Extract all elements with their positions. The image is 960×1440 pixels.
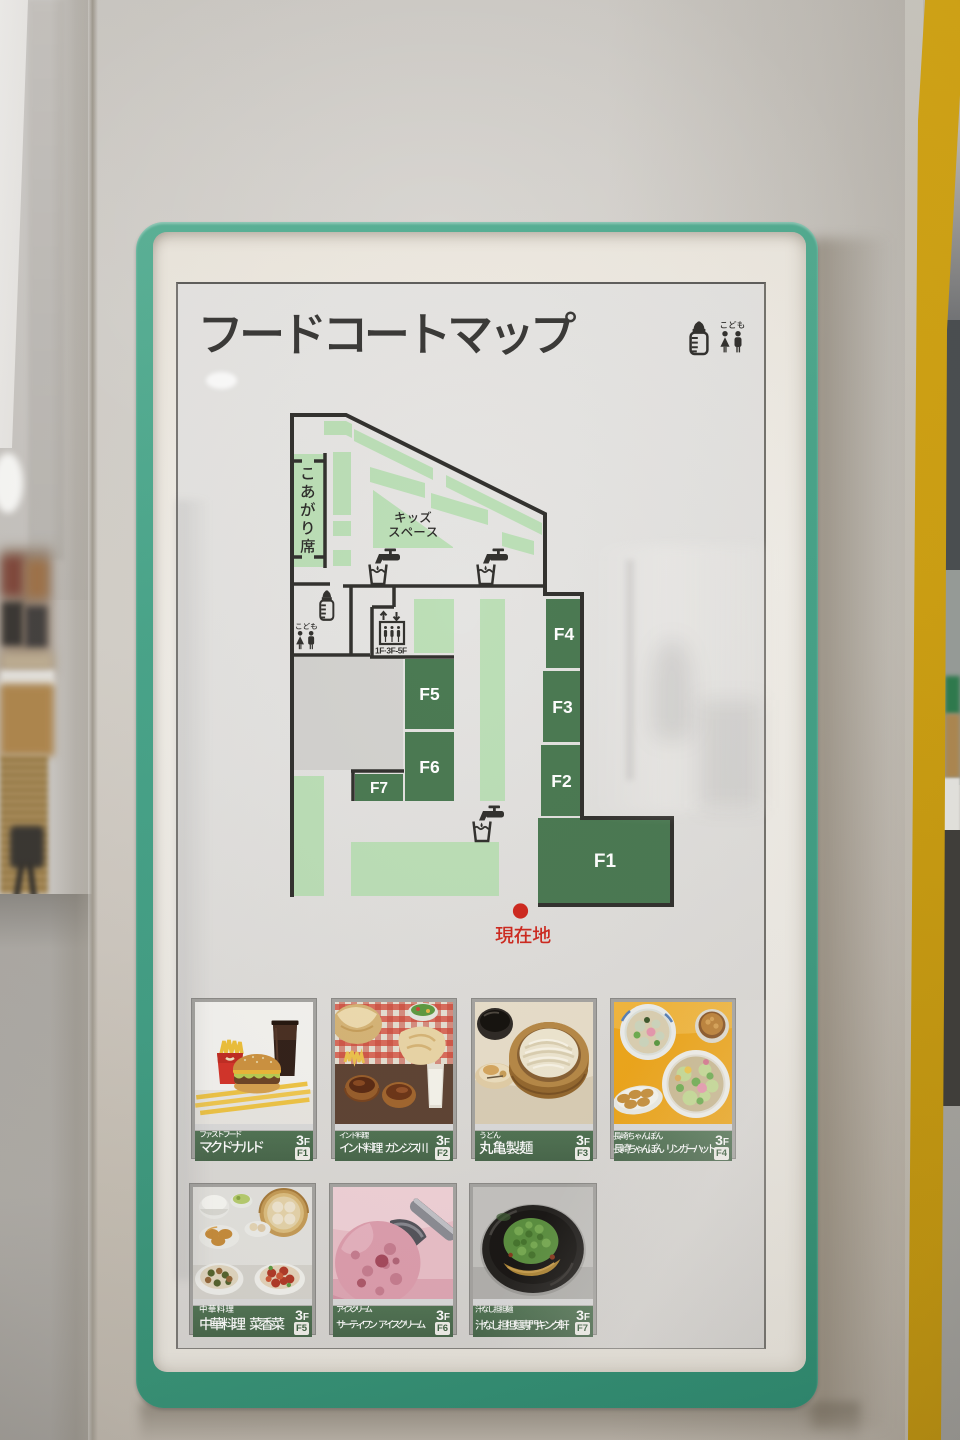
svg-text:F3: F3 xyxy=(552,697,573,717)
svg-text:F2: F2 xyxy=(551,771,572,791)
svg-text:F6: F6 xyxy=(419,757,440,777)
svg-text:F5: F5 xyxy=(419,684,440,704)
svg-text:F1: F1 xyxy=(594,851,617,872)
svg-text:1F·3F-5F: 1F·3F-5F xyxy=(375,646,407,656)
svg-text:F4: F4 xyxy=(554,624,575,644)
svg-text:F7: F7 xyxy=(370,780,388,797)
